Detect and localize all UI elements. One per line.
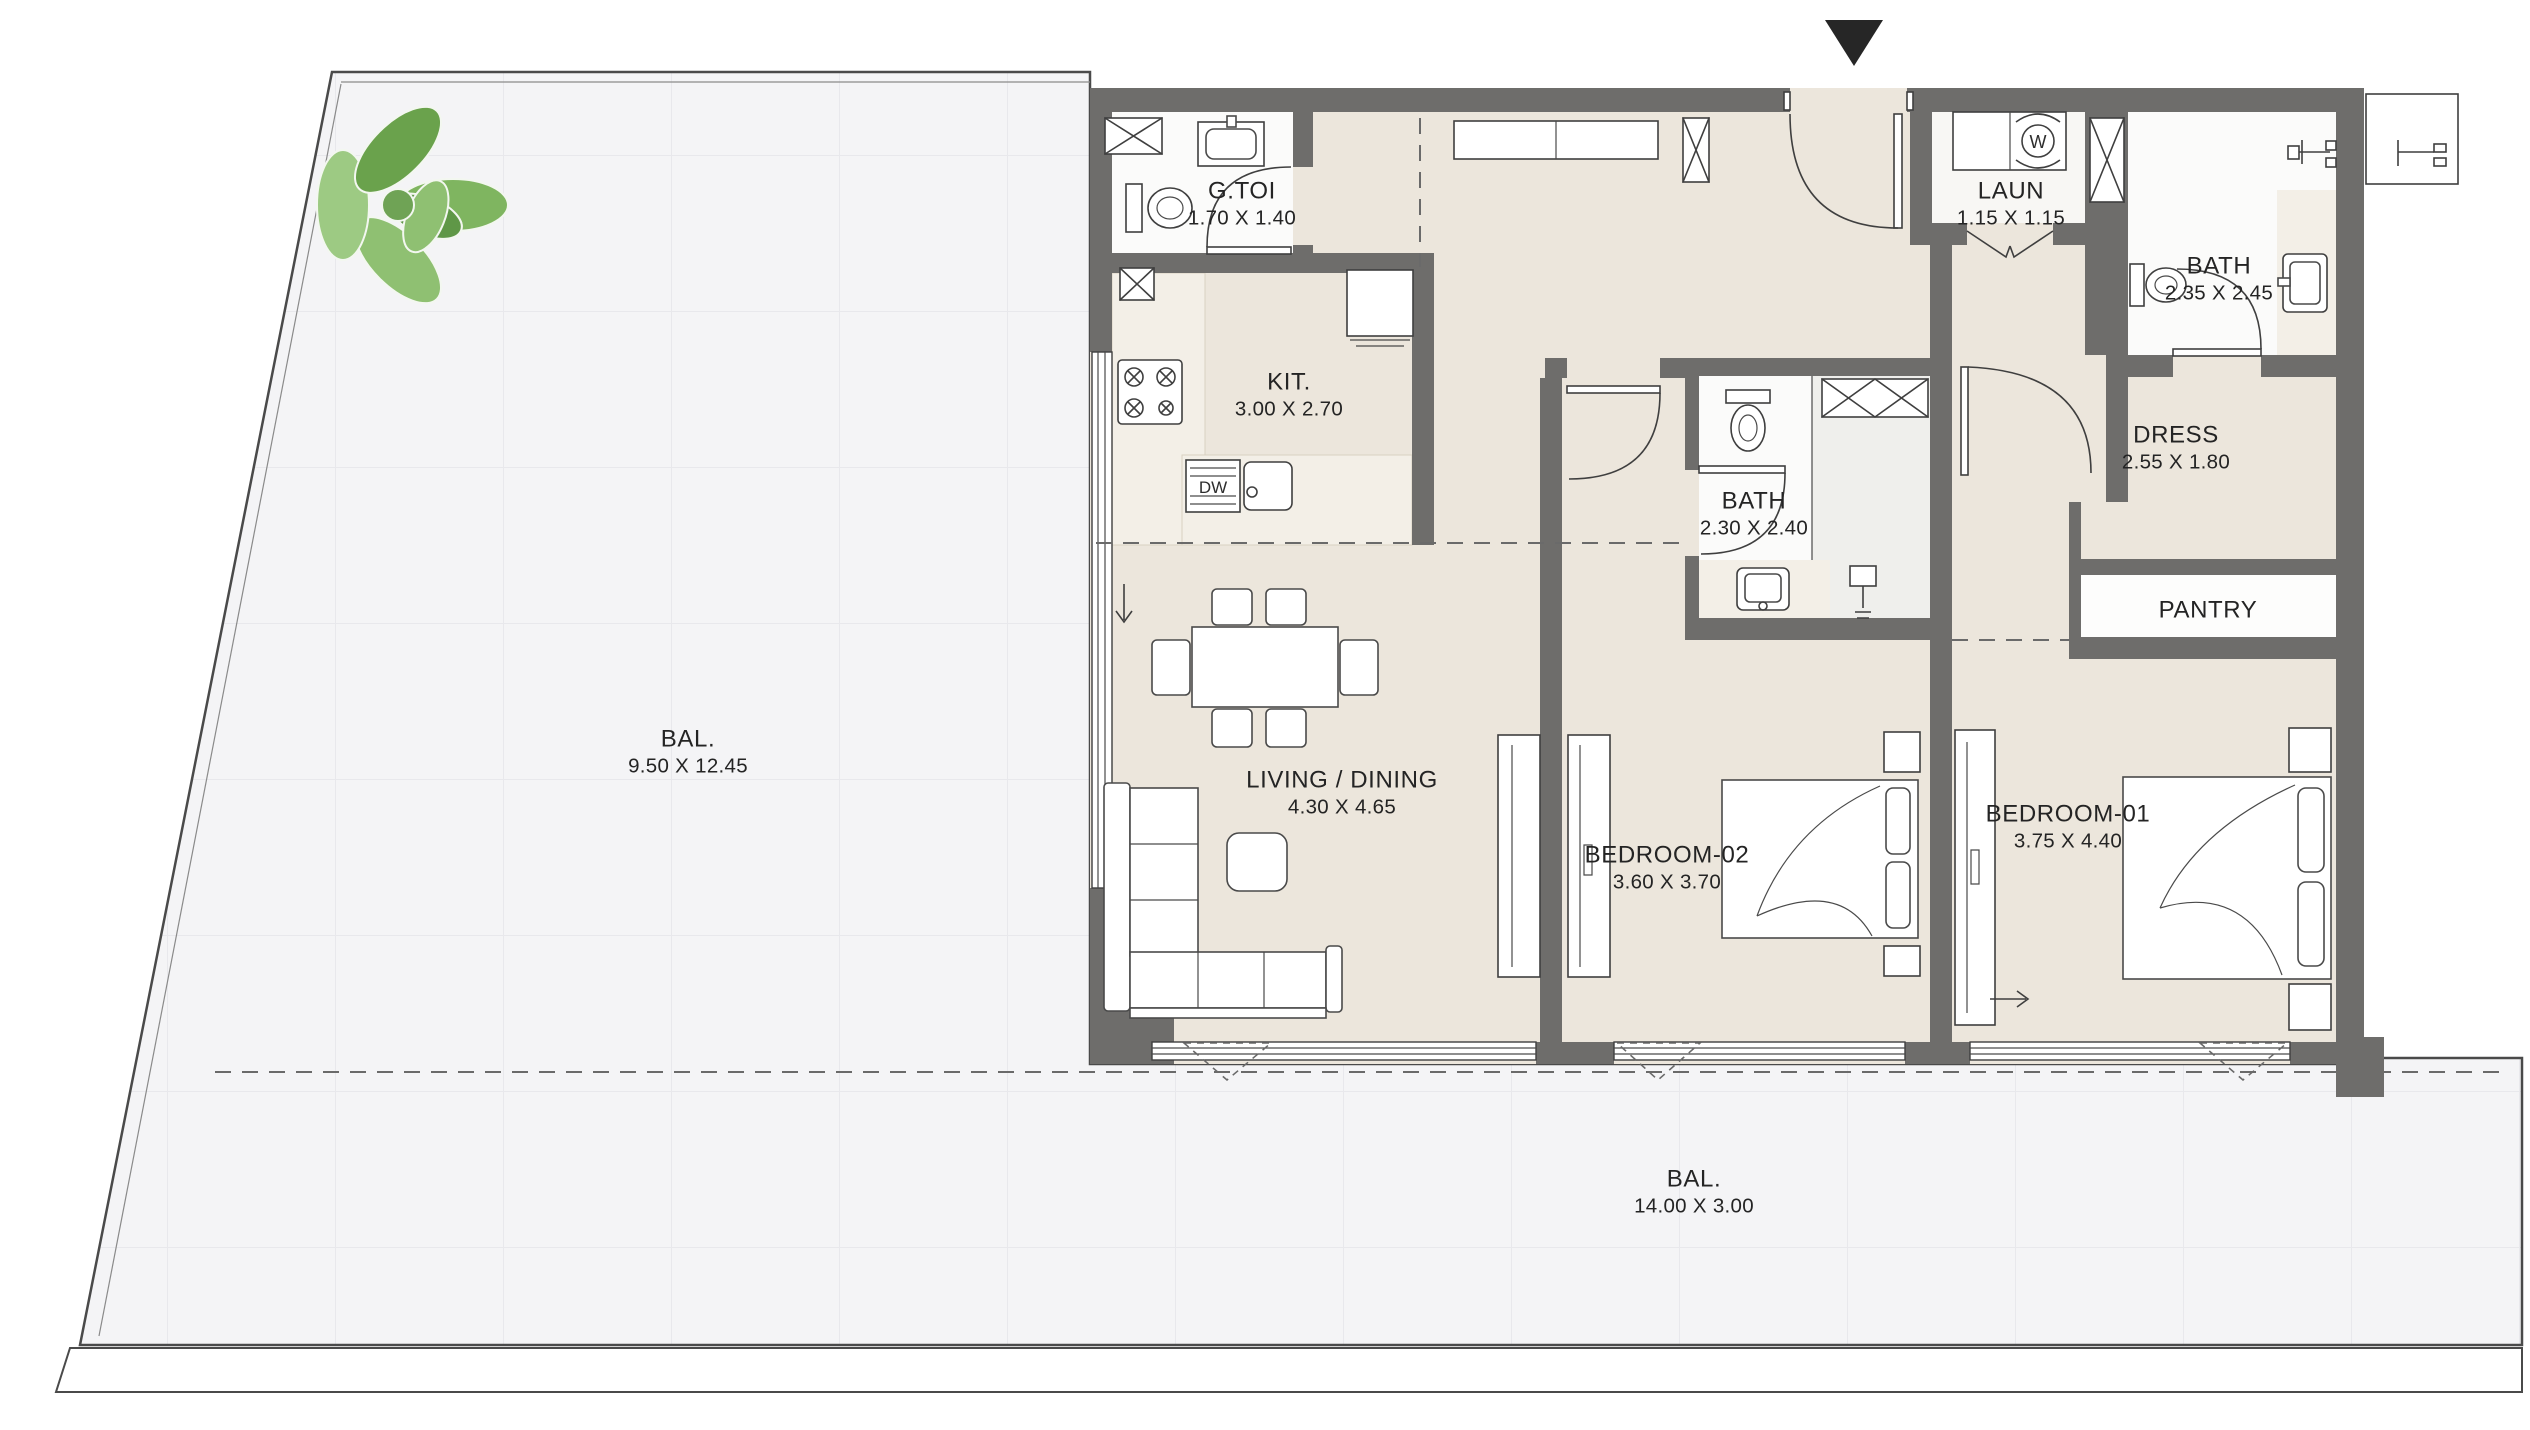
shaft-icon — [1105, 118, 1162, 154]
shaft-icon — [1120, 268, 1154, 300]
room-label-pantry: PANTRY — [2159, 597, 2258, 626]
exterior-niche — [2366, 94, 2458, 184]
room-label-bedroom-01: BEDROOM-01 3.75 X 4.40 — [1986, 800, 2151, 853]
room-label-laundry: LAUN 1.15 X 1.15 — [1957, 177, 2065, 230]
fridge-icon — [1347, 270, 1413, 336]
room-label-bath-2: BATH 2.30 X 2.40 — [1700, 487, 1808, 540]
room-label-bedroom-02: BEDROOM-02 3.60 X 3.70 — [1585, 841, 1750, 894]
entry-closet — [1454, 121, 1658, 159]
room-label-balcony-bottom: BAL. 14.00 X 3.00 — [1634, 1165, 1754, 1218]
dishwasher-label: DW — [1199, 478, 1227, 497]
shaft-icon — [1683, 118, 1709, 182]
kitchen-sink-icon — [1244, 462, 1292, 510]
entry-marker-icon — [1825, 20, 1883, 66]
bath-sink-icon — [2278, 254, 2327, 312]
coffee-table-icon — [1227, 833, 1287, 891]
shaft-icon — [1822, 379, 1928, 417]
window — [1614, 1042, 1905, 1060]
bath-sink-icon — [1737, 568, 1789, 610]
washer-label: W — [2030, 132, 2047, 152]
stove-icon — [1118, 360, 1182, 424]
wardrobe-icon — [1955, 730, 1995, 1025]
toilet-icon — [1126, 184, 1192, 232]
room-label-kitchen: KIT. 3.00 X 2.70 — [1235, 368, 1343, 421]
room-label-dress: DRESS 2.55 X 1.80 — [2122, 421, 2230, 474]
dishwasher-icon: DW — [1186, 460, 1240, 512]
tv-console — [1498, 735, 1540, 977]
window — [1152, 1042, 1536, 1060]
room-label-bath-1: BATH 2.35 X 2.45 — [2165, 252, 2273, 305]
parapet-band — [56, 1348, 2522, 1392]
washer-icon: W — [1953, 112, 2066, 170]
room-label-living-dining: LIVING / DINING 4.30 X 4.65 — [1246, 766, 1438, 819]
shaft-icon — [2090, 118, 2124, 202]
dining-table-icon — [1192, 627, 1338, 707]
window — [1970, 1042, 2290, 1060]
floor-plan-page: DW W — [0, 0, 2530, 1430]
laundry-fixtures: W — [1953, 112, 2066, 170]
room-label-balcony-left: BAL. 9.50 X 12.45 — [628, 725, 748, 778]
room-label-g-toi: G.TOI 1.70 X 1.40 — [1188, 177, 1296, 230]
